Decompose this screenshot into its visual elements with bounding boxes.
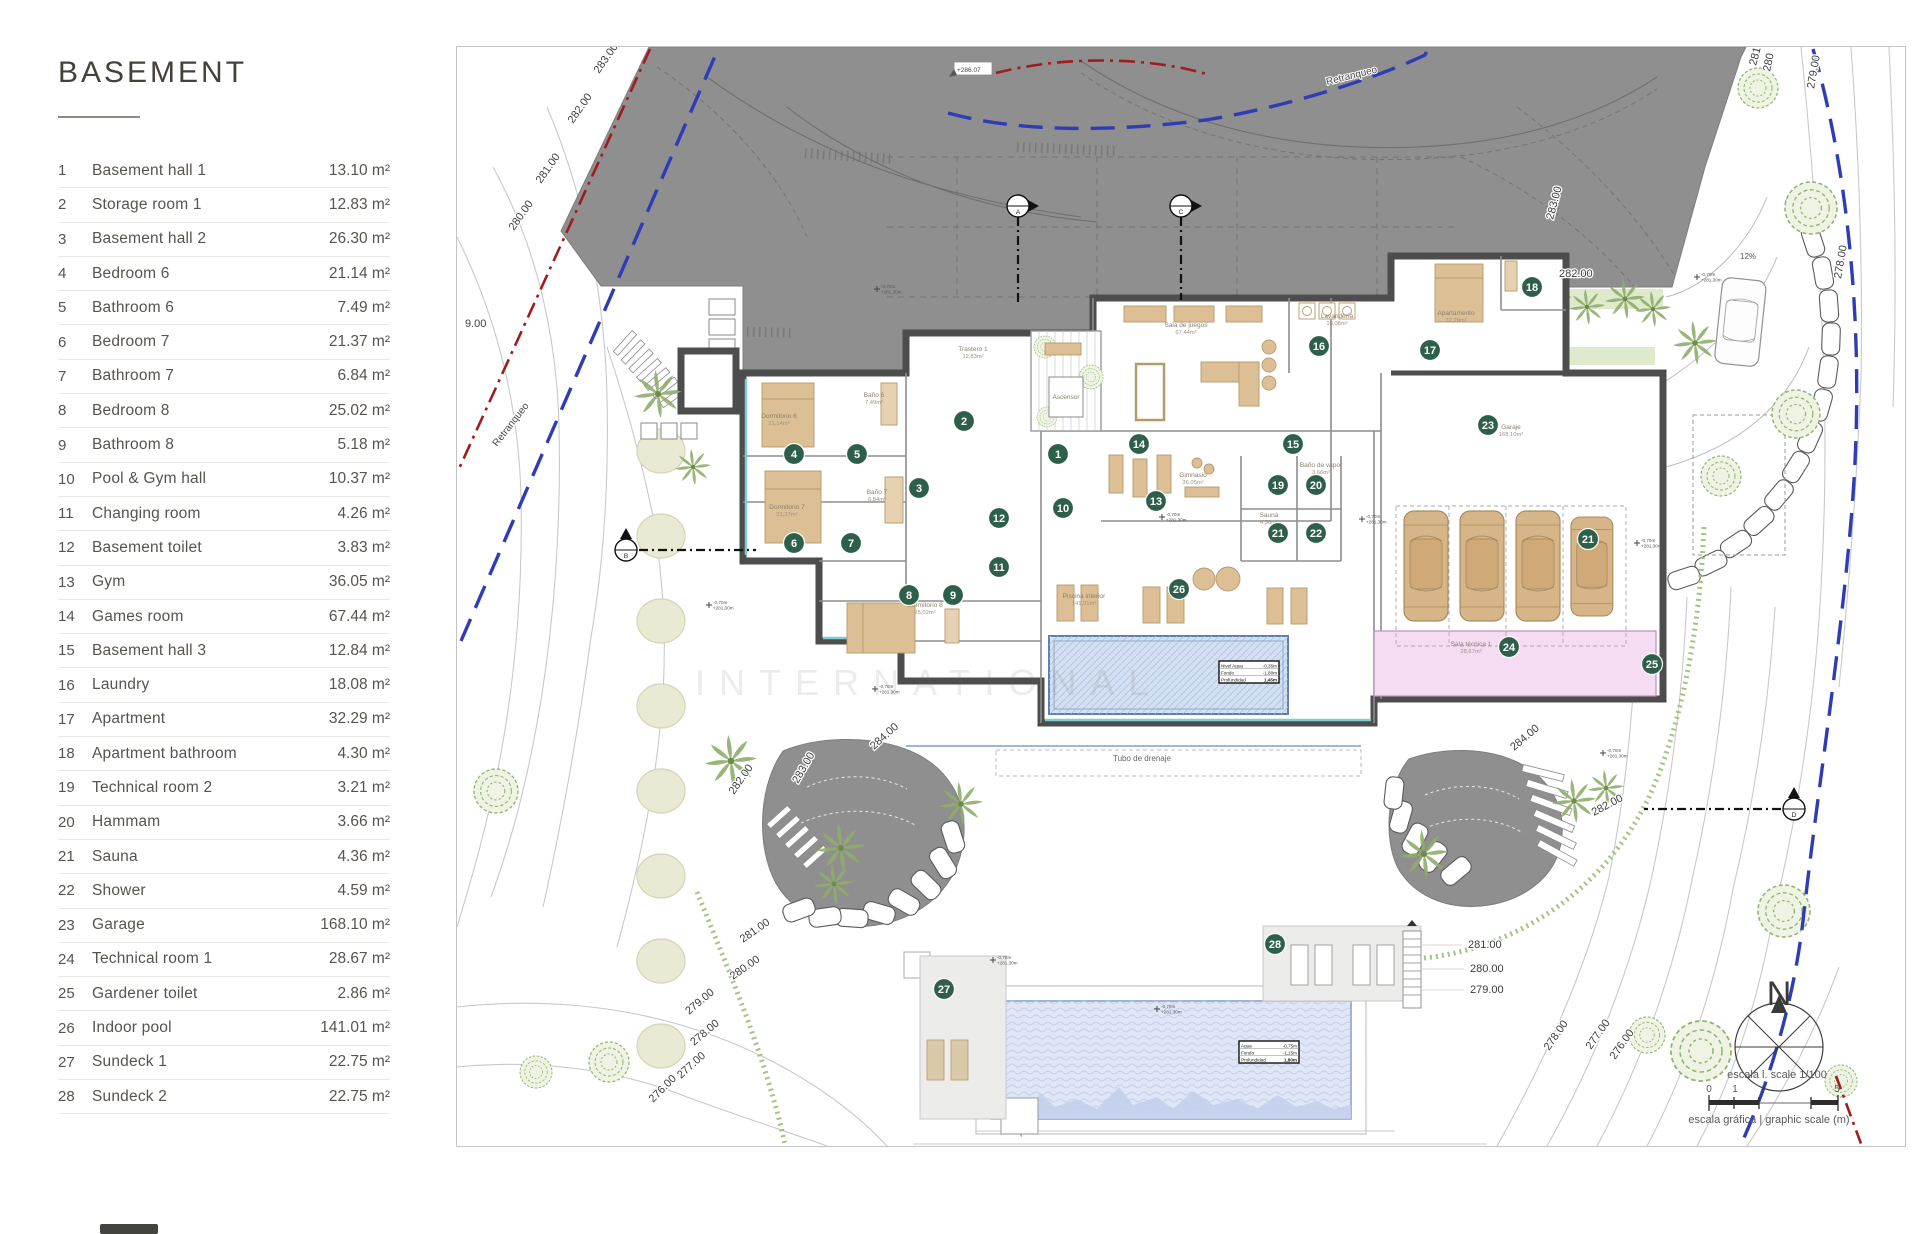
room-marker-3: 3 [909,478,930,499]
room-name: Bathroom 8 [92,436,337,454]
svg-text:C: C [1179,209,1184,216]
room-row: 25Gardener toilet2.86 m² [58,977,390,1011]
svg-text:+281,30m: +281,30m [879,690,900,695]
svg-text:+281,30m: +281,30m [1366,520,1387,525]
room-name: Technical room 2 [92,779,337,797]
room-marker-22: 22 [1306,523,1327,544]
room-marker-9: 9 [943,585,964,606]
svg-text:4: 4 [791,449,798,461]
room-area: 7.49 m² [337,299,390,317]
elevation-label: 277.00 [1584,1017,1613,1051]
svg-text:+281,30m: +281,30m [713,606,734,611]
scale-tick: 0 [1706,1084,1712,1095]
svg-text:B: B [624,553,628,560]
svg-text:Fondo: Fondo [1221,671,1234,676]
room-row: 9Bathroom 85.18 m² [58,428,390,462]
room-row: 19Technical room 23.21 m² [58,771,390,805]
svg-text:26: 26 [1173,584,1185,596]
plan-room-label: Ascensor [1052,394,1080,401]
room-name: Technical room 1 [92,950,329,968]
svg-text:-0,75m: -0,75m [1283,1044,1297,1049]
page-corner-stub [100,1224,158,1234]
elevation-label: 281 [1747,47,1763,67]
room-marker-12: 12 [989,508,1010,529]
room-name: Basement hall 2 [92,230,329,248]
svg-text:-0,35m: -0,35m [1263,664,1277,669]
svg-text:Profundidad: Profundidad [1221,678,1246,683]
room-row: 10Pool & Gym hall10.37 m² [58,463,390,497]
svg-text:1: 1 [1055,449,1061,461]
driveway [1666,197,1809,555]
room-area: 4.36 m² [337,848,390,866]
page: BASEMENT 1Basement hall 113.10 m²2Storag… [0,0,1920,1234]
room-name: Gym [92,573,329,591]
elevation-label: 282.00 [566,91,595,125]
svg-text:3: 3 [916,483,922,495]
mound-right [1383,750,1577,906]
room-area: 141.01 m² [320,1019,390,1037]
room-marker-21: 21 [1268,523,1289,544]
room-number: 6 [58,334,92,351]
elevation-label: 281.00 [534,151,563,185]
elevation-label: 278.00 [1542,1018,1571,1052]
room-marker-11: 11 [989,557,1010,578]
room-name: Bathroom 6 [92,299,337,317]
room-number: 7 [58,368,92,385]
svg-text:13: 13 [1150,496,1162,508]
room-area: 168.10 m² [320,916,390,934]
svg-text:9: 9 [950,590,956,602]
room-area: 4.26 m² [337,505,390,523]
svg-text:23: 23 [1482,420,1494,432]
room-marker-14: 14 [1129,434,1150,455]
room-number: 21 [58,848,92,865]
room-number: 1 [58,162,92,179]
room-row: 5Bathroom 67.49 m² [58,291,390,325]
sundeck-2 [1263,920,1464,1008]
room-row: 26Indoor pool141.01 m² [58,1011,390,1045]
svg-text:+281,30m: +281,30m [1701,278,1722,283]
room-name: Basement toilet [92,539,337,557]
svg-text:24: 24 [1503,642,1516,654]
elevation-label: 279.00 [683,986,716,1017]
room-area: 22.75 m² [329,1053,390,1071]
room-number: 5 [58,299,92,316]
svg-text:+286.07: +286.07 [957,67,981,74]
olive-trees [637,429,685,1068]
room-area: 3.21 m² [337,779,390,797]
room-area: 36.05 m² [329,573,390,591]
svg-text:-0,70m: -0,70m [1166,512,1180,517]
setback-line-left [461,47,719,641]
svg-text:21: 21 [1582,534,1594,546]
svg-text:-0,70m: -0,70m [1607,748,1621,753]
room-number: 18 [58,745,92,762]
room-number: 10 [58,471,92,488]
room-number: 14 [58,608,92,625]
room-name: Bedroom 7 [92,333,329,351]
elevation-label: 280 [1761,52,1777,72]
spot-level: -0,70m+281,30m [1694,272,1722,283]
room-number: 23 [58,917,92,934]
room-area: 3.66 m² [337,813,390,831]
svg-text:18: 18 [1526,282,1538,294]
watermark: INTERNATIONAL [695,662,1162,703]
legend-divider [58,116,140,118]
room-area: 26.30 m² [329,230,390,248]
room-row: 28Sundeck 222.75 m² [58,1080,390,1114]
elevation-label: 279.00 [1470,984,1504,996]
room-row: 1Basement hall 113.10 m² [58,154,390,188]
room-name: Gardener toilet [92,985,337,1003]
spot-level: -0,70m+281,30m [1600,748,1628,759]
elevation-label: 9.00 [465,318,486,330]
room-row: 24Technical room 128.67 m² [58,943,390,977]
visitor-car [1714,277,1767,367]
elevation-label: 278.00 [1832,244,1850,279]
room-area: 4.30 m² [337,745,390,763]
room-area: 18.08 m² [329,676,390,694]
room-marker-7: 7 [841,533,862,554]
room-name: Bedroom 8 [92,402,329,420]
drain-label: Tubo de drenaje [1113,754,1172,763]
scale-subtitle: escala gráfica | graphic scale (m) [1688,1114,1849,1126]
room-area: 28.67 m² [329,950,390,968]
mound-left [763,739,967,928]
room-number: 20 [58,814,92,831]
room-row: 18Apartment bathroom4.30 m² [58,737,390,771]
room-area: 32.29 m² [329,710,390,728]
room-row: 3Basement hall 226.30 m² [58,223,390,257]
svg-text:11: 11 [993,562,1005,574]
room-number: 8 [58,402,92,419]
section-marker-B: B [615,528,756,561]
scale-tick: 5 [1834,1084,1840,1095]
svg-text:12: 12 [993,513,1005,525]
room-area: 21.37 m² [329,333,390,351]
room-name: Changing room [92,505,337,523]
room-name: Basement hall 3 [92,642,329,660]
room-name: Garage [92,916,320,934]
svg-text:+281,30m: +281,30m [1607,754,1628,759]
room-name: Indoor pool [92,1019,320,1037]
room-row: 20Hammam3.66 m² [58,806,390,840]
svg-text:-0,70m: -0,70m [1161,1004,1175,1009]
scale-tick: 1 [1732,1084,1738,1095]
svg-text:Agua: Agua [1241,1044,1252,1049]
room-name: Storage room 1 [92,196,329,214]
room-name: Games room [92,608,329,626]
room-area: 4.59 m² [337,882,390,900]
svg-text:+281,30m: +281,30m [997,961,1018,966]
svg-text:-1,80m: -1,80m [1263,671,1277,676]
room-area: 21.14 m² [329,265,390,283]
elevation-label: 276.00 [647,1073,679,1105]
room-name: Apartment bathroom [92,745,337,763]
room-row: 2Storage room 112.83 m² [58,188,390,222]
room-name: Sundeck 1 [92,1053,329,1071]
svg-text:-0,70m: -0,70m [881,284,895,289]
room-marker-23: 23 [1478,415,1499,436]
svg-text:5: 5 [854,449,860,461]
pool-table: Agua-0,75mFondo-1,15mProfundidad1,80m [1239,1041,1299,1063]
svg-text:20: 20 [1310,480,1322,492]
room-marker-4: 4 [784,444,805,465]
room-number: 19 [58,779,92,796]
floor-plan: Tubo de drenaje [456,46,1906,1147]
room-marker-26: 26 [1169,579,1190,600]
svg-text:22: 22 [1310,528,1322,540]
room-marker-20: 20 [1306,475,1327,496]
room-row: 11Changing room4.26 m² [58,497,390,531]
svg-text:1,80m: 1,80m [1284,1058,1297,1063]
room-row: 4Bedroom 621.14 m² [58,257,390,291]
room-area: 10.37 m² [329,470,390,488]
room-name: Sundeck 2 [92,1088,329,1106]
svg-text:28: 28 [1269,939,1281,951]
room-name: Hammam [92,813,337,831]
svg-text:-0,70m: -0,70m [1366,514,1380,519]
room-row: 21Sauna4.36 m² [58,840,390,874]
room-number: 11 [58,505,92,522]
room-marker-28: 28 [1265,934,1286,955]
room-marker-1: 1 [1048,444,1069,465]
drainage: Tubo de drenaje [906,746,1361,776]
svg-text:25: 25 [1646,659,1658,671]
room-row: 13Gym36.05 m² [58,566,390,600]
svg-text:Fondo: Fondo [1241,1051,1254,1056]
room-number: 27 [58,1054,92,1071]
room-name: Sauna [92,848,337,866]
room-number: 28 [58,1088,92,1105]
svg-text:19: 19 [1272,480,1284,492]
svg-text:Nivel Agua: Nivel Agua [1221,664,1243,669]
pool-planter [1001,1098,1038,1134]
room-marker-24: 24 [1499,637,1520,658]
svg-text:2: 2 [961,416,967,428]
scale-title: escala l. scale 1/100 [1727,1069,1827,1081]
room-number: 15 [58,642,92,659]
elevation-label: 278.00 [688,1017,721,1048]
svg-text:16: 16 [1313,341,1325,353]
pool-table: Nivel Agua-0,35mFondo-1,80mProfundidad1,… [1219,661,1279,683]
room-area: 6.84 m² [337,367,390,385]
room-number: 13 [58,574,92,591]
svg-text:A: A [1016,209,1021,216]
room-area: 12.83 m² [329,196,390,214]
spot-level: -0,70m+281,30m [706,600,734,611]
room-marker-2: 2 [954,411,975,432]
room-name: Pool & Gym hall [92,470,329,488]
room-name: Bathroom 7 [92,367,337,385]
room-number: 26 [58,1020,92,1037]
room-marker-16: 16 [1309,336,1330,357]
elevation-label: 283.00 [592,47,621,76]
deck-ladder [1403,920,1421,1008]
room-row: 16Laundry18.08 m² [58,668,390,702]
elevation-label: 284.00 [1508,722,1541,753]
room-marker-10: 10 [1053,498,1074,519]
svg-text:-1,15m: -1,15m [1283,1051,1297,1056]
svg-text:10: 10 [1057,503,1069,515]
room-list: 1Basement hall 113.10 m²2Storage room 11… [58,154,390,1114]
retranqueo-label-left: Retranqueo [491,401,532,449]
room-marker-19: 19 [1268,475,1289,496]
svg-text:+281,30m: +281,30m [881,290,902,295]
room-number: 9 [58,437,92,454]
sundeck-1 [904,952,1006,1119]
svg-text:+281,30m: +281,30m [1166,518,1187,523]
room-row: 12Basement toilet3.83 m² [58,531,390,565]
room-row: 23Garage168.10 m² [58,909,390,943]
svg-text:+281,30m: +281,30m [1161,1010,1182,1015]
elevation-label: 281.00 [1468,939,1502,951]
entry-court [613,299,736,439]
svg-text:14: 14 [1133,439,1146,451]
room-number: 3 [58,231,92,248]
room-marker-15: 15 [1283,434,1304,455]
benchmark: +286.07 [949,62,992,77]
svg-text:-0,70m: -0,70m [713,600,727,605]
room-row: 6Bedroom 721.37 m² [58,325,390,359]
elevation-label: 282.00 [1559,268,1593,280]
room-number: 25 [58,985,92,1002]
room-area: 12.84 m² [329,642,390,660]
svg-text:-0,70m: -0,70m [1701,272,1715,277]
elevation-label: 280.00 [728,953,762,982]
room-area: 67.44 m² [329,608,390,626]
room-marker-21: 21 [1578,529,1599,550]
svg-text:7: 7 [848,538,854,550]
svg-text:6: 6 [791,538,797,550]
legend-title: BASEMENT [58,56,390,90]
room-number: 22 [58,882,92,899]
room-row: 14Games room67.44 m² [58,600,390,634]
room-number: 4 [58,265,92,282]
room-area: 25.02 m² [329,402,390,420]
entry-stair-box [681,351,736,411]
room-area: 2.86 m² [337,985,390,1003]
room-name: Basement hall 1 [92,162,329,180]
svg-text:+281,30m: +281,30m [1641,544,1662,549]
svg-text:17: 17 [1424,345,1436,357]
room-name: Shower [92,882,337,900]
room-area: 5.18 m² [337,436,390,454]
elevation-label: 281.00 [738,916,772,945]
svg-text:Profundidad: Profundidad [1241,1058,1266,1063]
room-row: 22Shower4.59 m² [58,874,390,908]
room-area: 13.10 m² [329,162,390,180]
room-marker-18: 18 [1522,277,1543,298]
svg-text:21: 21 [1272,528,1284,540]
room-number: 16 [58,677,92,694]
room-number: 24 [58,951,92,968]
floor-plan-svg: Tubo de drenaje [457,47,1905,1146]
room-row: 17Apartment32.29 m² [58,703,390,737]
room-number: 17 [58,711,92,728]
svg-text:15: 15 [1287,439,1299,451]
room-marker-27: 27 [934,979,955,1000]
room-marker-8: 8 [899,585,920,606]
elevation-label: 280.00 [1470,963,1504,975]
room-marker-13: 13 [1146,491,1167,512]
svg-text:27: 27 [938,984,950,996]
svg-text:-0,70m: -0,70m [1641,538,1655,543]
room-marker-25: 25 [1642,654,1663,675]
room-marker-17: 17 [1420,340,1441,361]
svg-text:-0,70m: -0,70m [879,684,893,689]
room-name: Laundry [92,676,329,694]
svg-text:1,45m: 1,45m [1264,678,1277,683]
slope-label: 12% [1740,252,1756,261]
room-area: 22.75 m² [329,1088,390,1106]
room-name: Bedroom 6 [92,265,329,283]
room-marker-5: 5 [847,444,868,465]
room-area: 3.83 m² [337,539,390,557]
room-row: 27Sundeck 122.75 m² [58,1046,390,1080]
room-name: Apartment [92,710,329,728]
room-row: 8Bedroom 825.02 m² [58,394,390,428]
room-row: 7Bathroom 76.84 m² [58,360,390,394]
legend-panel: BASEMENT 1Basement hall 113.10 m²2Storag… [58,56,390,1114]
svg-text:D: D [1792,812,1797,819]
room-number: 12 [58,539,92,556]
svg-text:8: 8 [906,590,912,602]
svg-text:-0,70m: -0,70m [997,955,1011,960]
room-number: 2 [58,196,92,213]
room-row: 15Basement hall 312.84 m² [58,634,390,668]
room-marker-6: 6 [784,533,805,554]
